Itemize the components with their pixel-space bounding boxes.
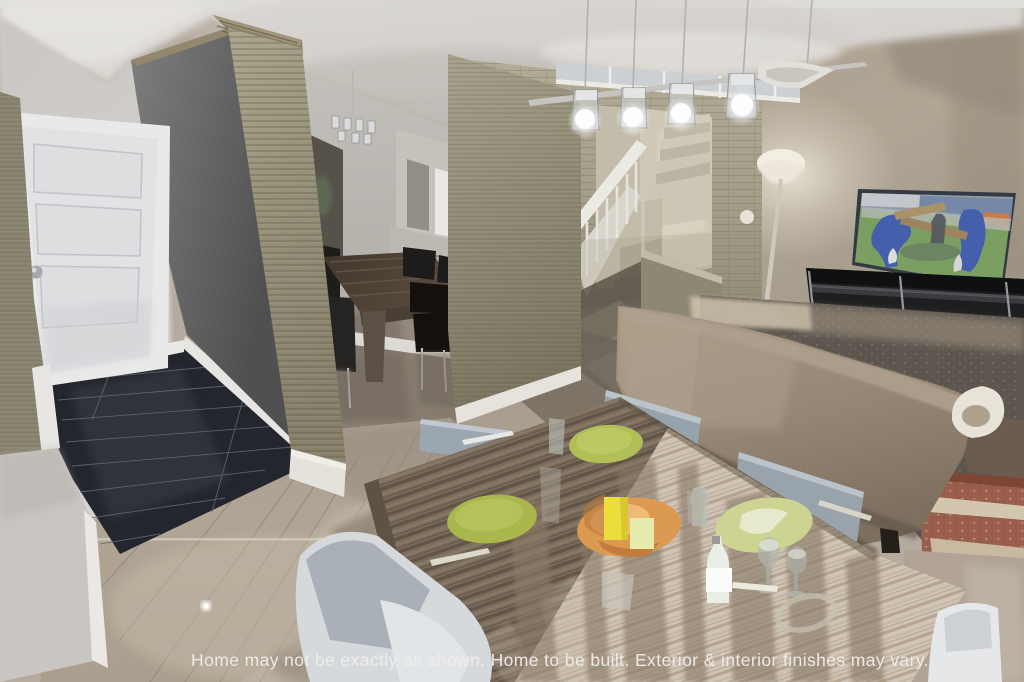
svg-text:Home may not be exactly as sho: Home may not be exactly as shown. Home t…: [191, 650, 929, 670]
